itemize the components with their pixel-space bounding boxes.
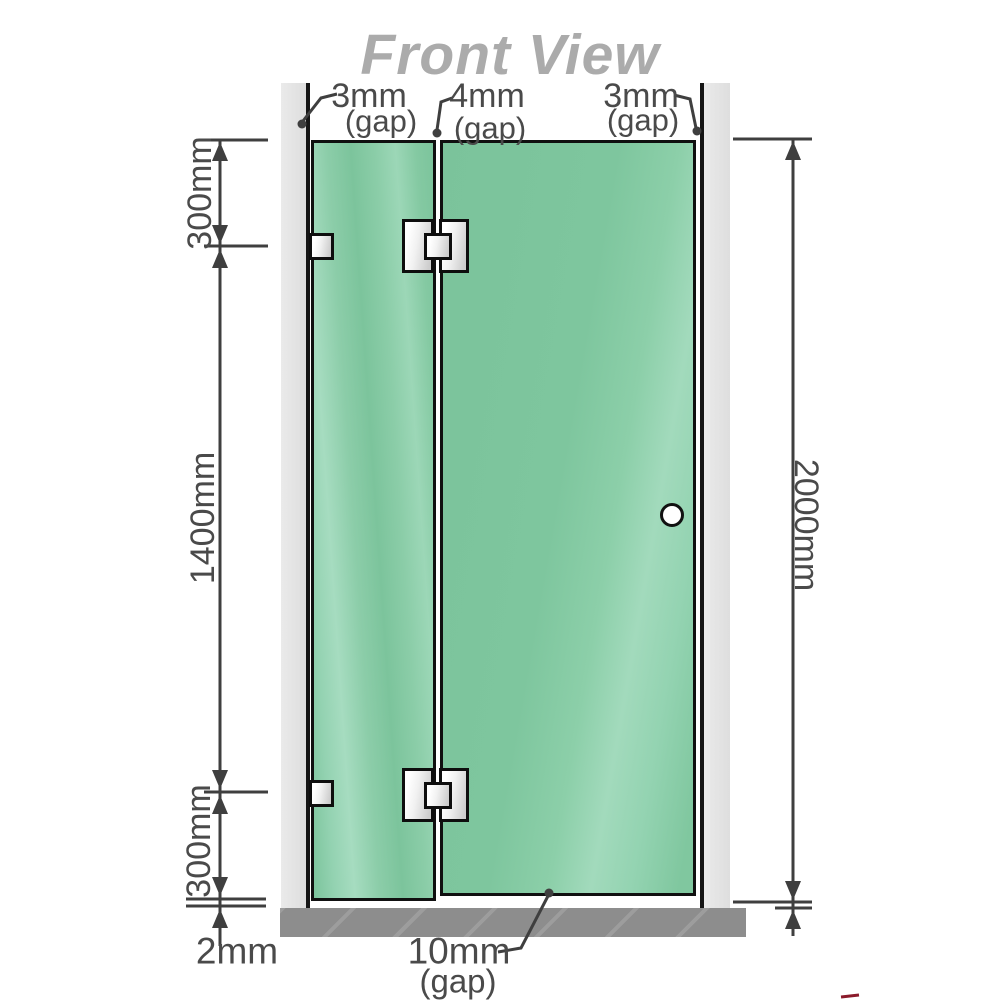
dimension-overlay bbox=[0, 0, 1000, 1000]
arrow-down-icon bbox=[785, 881, 801, 900]
leader-lines bbox=[303, 94, 696, 952]
arrow-up-icon bbox=[212, 249, 228, 268]
label-gap-left-sub: (gap) bbox=[345, 106, 417, 137]
label-gap-right-sub: (gap) bbox=[607, 105, 679, 136]
corner-mark bbox=[841, 995, 859, 997]
label-height-mid: 1400mm bbox=[186, 452, 220, 584]
label-gap-mid-sub: (gap) bbox=[454, 113, 526, 144]
label-floor-gap-left: 2mm bbox=[196, 933, 278, 970]
shower-screen-front-view-diagram: Front View bbox=[0, 0, 1000, 1000]
label-total-height: 2000mm bbox=[789, 459, 823, 591]
arrow-up-icon bbox=[785, 141, 801, 160]
label-height-bottom: 300mm bbox=[182, 784, 216, 897]
label-gap-mid: 4mm bbox=[449, 79, 525, 113]
arrow-up-icon bbox=[212, 909, 228, 928]
label-height-top: 300mm bbox=[183, 136, 217, 249]
label-floor-gap-door-sub: (gap) bbox=[419, 965, 496, 998]
arrow-up-icon bbox=[785, 910, 801, 929]
leader-dots bbox=[298, 120, 702, 898]
